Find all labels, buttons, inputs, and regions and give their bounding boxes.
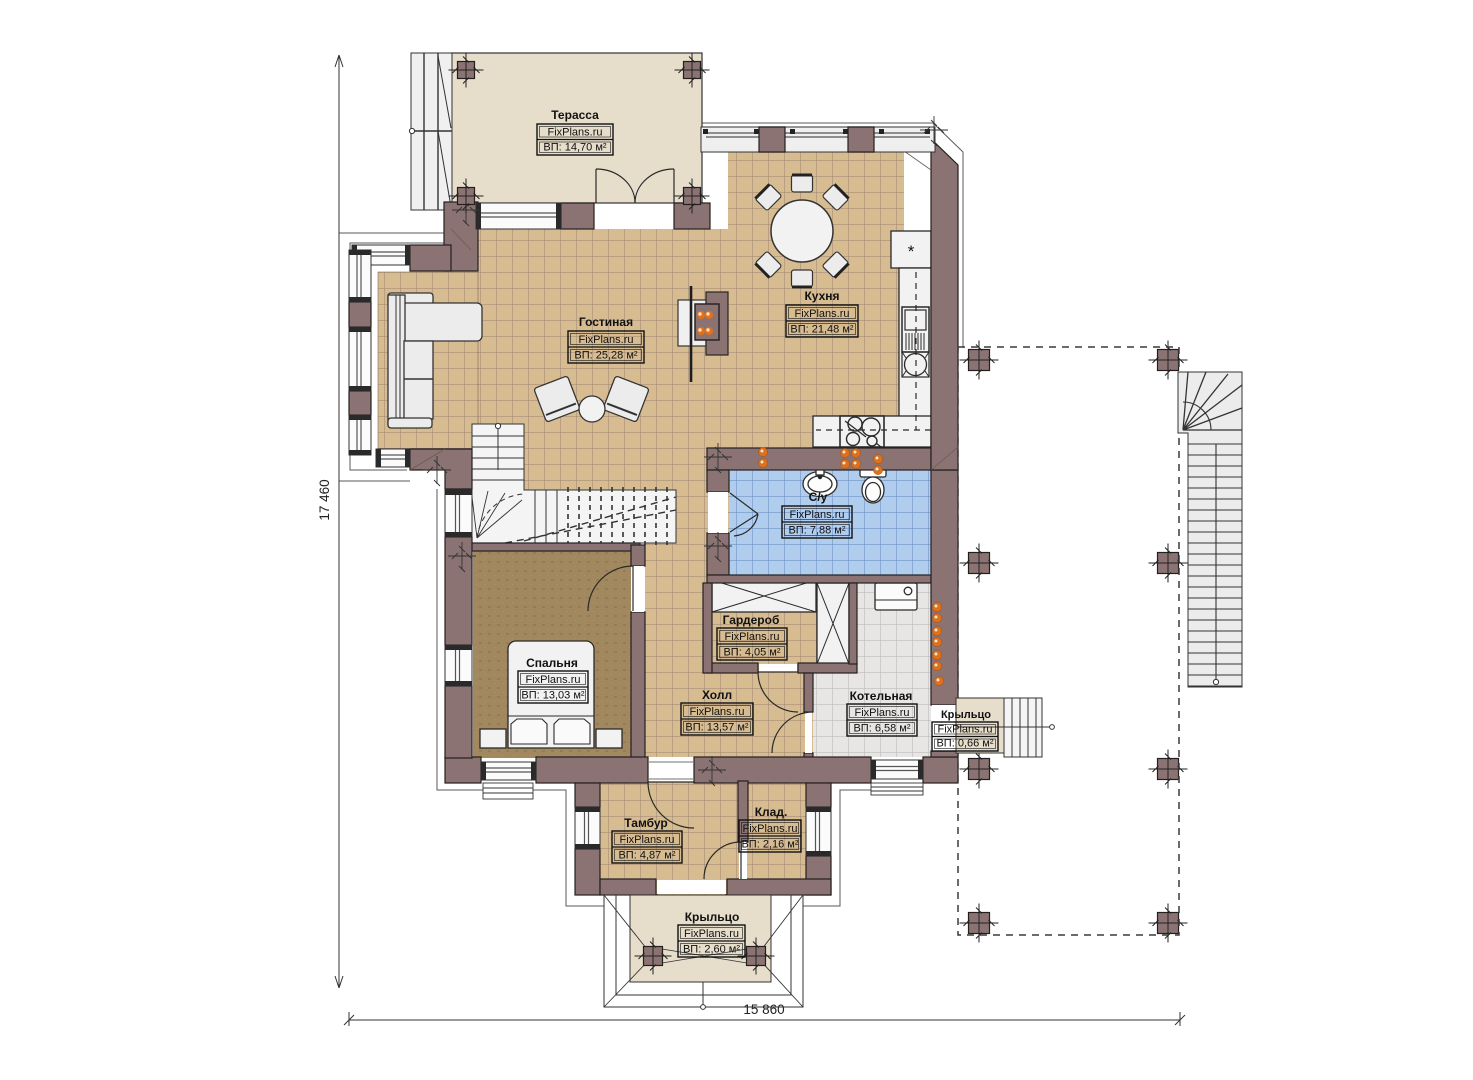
svg-text:FixPlans.ru: FixPlans.ru xyxy=(689,706,744,718)
svg-text:Крыльцо: Крыльцо xyxy=(685,910,740,924)
svg-text:FixPlans.ru: FixPlans.ru xyxy=(525,674,580,686)
svg-text:15 860: 15 860 xyxy=(743,1002,784,1017)
svg-text:FixPlans.ru: FixPlans.ru xyxy=(937,724,992,736)
svg-text:ВП: 4,05 м²: ВП: 4,05 м² xyxy=(723,647,780,659)
svg-text:ВП: 4,87 м²: ВП: 4,87 м² xyxy=(618,850,675,862)
svg-text:Кухня: Кухня xyxy=(804,289,839,303)
svg-text:Тамбур: Тамбур xyxy=(624,816,668,830)
svg-text:Клад.: Клад. xyxy=(755,805,788,819)
svg-text:Крыльцо: Крыльцо xyxy=(941,709,991,721)
svg-text:С/у: С/у xyxy=(809,490,828,504)
svg-text:ВП: 21,48 м²: ВП: 21,48 м² xyxy=(790,324,854,336)
svg-text:Спальня: Спальня xyxy=(526,656,578,670)
svg-text:FixPlans.ru: FixPlans.ru xyxy=(684,928,739,940)
svg-text:FixPlans.ru: FixPlans.ru xyxy=(547,127,602,139)
svg-text:*: * xyxy=(908,242,915,261)
svg-text:FixPlans.ru: FixPlans.ru xyxy=(724,631,779,643)
svg-text:Гардероб: Гардероб xyxy=(723,613,780,627)
svg-text:ВП: 0,66 м²: ВП: 0,66 м² xyxy=(936,738,993,750)
svg-text:FixPlans.ru: FixPlans.ru xyxy=(794,308,849,320)
svg-text:FixPlans.ru: FixPlans.ru xyxy=(619,834,674,846)
svg-text:ВП: 2,16 м²: ВП: 2,16 м² xyxy=(741,839,798,851)
svg-text:ВП: 2,60 м²: ВП: 2,60 м² xyxy=(683,944,740,956)
svg-text:ВП: 7,88 м²: ВП: 7,88 м² xyxy=(788,525,845,537)
svg-text:ВП: 6,58 м²: ВП: 6,58 м² xyxy=(853,723,910,735)
svg-text:FixPlans.ru: FixPlans.ru xyxy=(742,823,797,835)
svg-text:17 460: 17 460 xyxy=(317,479,332,520)
svg-text:Терасса: Терасса xyxy=(551,108,599,122)
svg-text:Гостиная: Гостиная xyxy=(579,315,633,329)
svg-text:ВП: 13,57 м²: ВП: 13,57 м² xyxy=(685,722,749,734)
svg-text:ВП: 13,03 м²: ВП: 13,03 м² xyxy=(521,690,585,702)
svg-text:FixPlans.ru: FixPlans.ru xyxy=(578,334,633,346)
svg-text:ВП: 14,70 м²: ВП: 14,70 м² xyxy=(543,142,607,154)
svg-text:Котельная: Котельная xyxy=(850,689,913,703)
svg-text:FixPlans.ru: FixPlans.ru xyxy=(789,509,844,521)
svg-text:FixPlans.ru: FixPlans.ru xyxy=(854,707,909,719)
svg-text:Холл: Холл xyxy=(702,688,732,702)
svg-text:ВП: 25,28 м²: ВП: 25,28 м² xyxy=(574,350,638,362)
